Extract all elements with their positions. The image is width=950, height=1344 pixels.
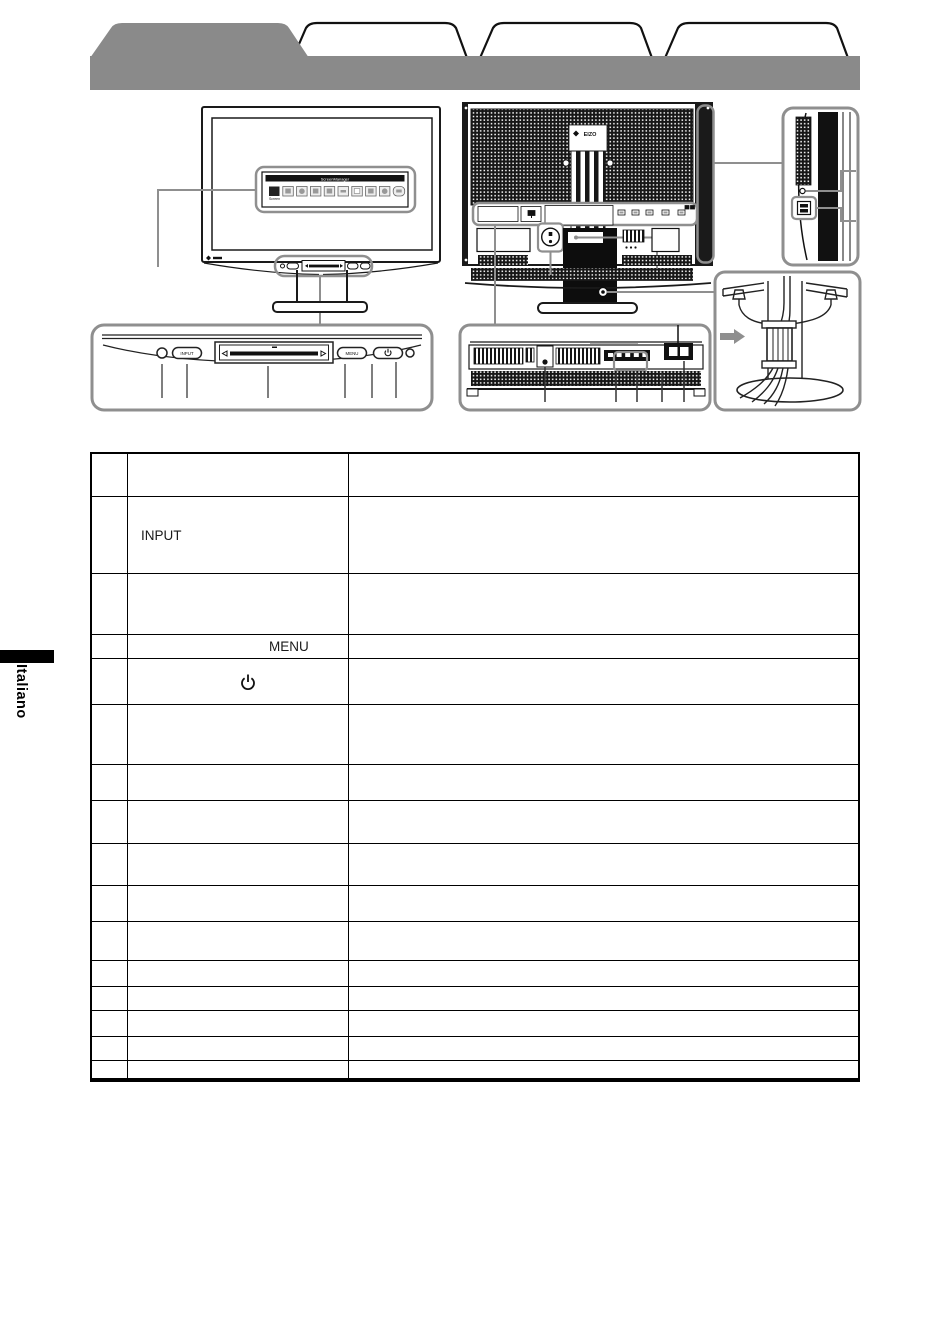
power-connector <box>538 224 563 252</box>
menu-row-label: MENU <box>128 635 349 658</box>
table-row: MENU <box>92 634 858 658</box>
language-tab-header <box>90 20 860 90</box>
bottom-connectors-closeup <box>460 325 710 410</box>
power-icon <box>240 673 256 691</box>
rating-label-plate <box>477 229 530 252</box>
slide-bar <box>215 342 333 363</box>
menu-button: MENU <box>338 348 367 359</box>
table-row <box>92 986 858 1010</box>
tab-active <box>90 23 309 58</box>
tab-2 <box>293 23 467 58</box>
cable-holder-closeup <box>715 272 860 410</box>
control-panel-closeup: INPUT MENU <box>92 325 432 410</box>
screw-icon <box>563 160 569 166</box>
table-row <box>92 1036 858 1060</box>
table-row <box>92 843 858 885</box>
table-row <box>92 921 858 960</box>
table-row <box>92 1060 858 1081</box>
manual-page: { "sidebar": { "language": "Italiano" },… <box>0 0 950 1344</box>
side-closeup <box>783 108 858 265</box>
screw-icon <box>607 160 613 166</box>
table-row <box>92 885 858 921</box>
power-button <box>374 348 403 359</box>
power-indicator-icon <box>406 349 414 357</box>
menu-selected-label: Screen <box>269 197 280 201</box>
table-row <box>92 764 858 800</box>
table-row: INPUT <box>92 496 858 573</box>
input-button: INPUT <box>173 348 202 359</box>
language-label: Italiano <box>13 664 29 719</box>
table-row <box>92 704 858 764</box>
input-row-label: INPUT <box>128 497 349 573</box>
table-row <box>92 800 858 843</box>
parts-function-table: INPUT MENU <box>90 452 860 1082</box>
table-row <box>92 573 858 634</box>
table-row <box>92 960 858 986</box>
table-row <box>92 454 858 496</box>
usb-port <box>792 197 816 219</box>
side-vent-mesh <box>796 117 811 185</box>
tab-3 <box>480 23 652 58</box>
input-button-label: INPUT <box>180 351 193 356</box>
language-edge-bar <box>0 650 54 663</box>
table-row <box>92 658 858 704</box>
screen-manager-menu: ScreenManager Screen <box>262 172 408 207</box>
menu-button-label: MENU <box>346 351 359 356</box>
monitor-diagrams: ScreenManager Screen <box>90 93 872 418</box>
screen-manager-title: ScreenManager <box>321 176 350 181</box>
svg-text:EIZO: EIZO <box>584 132 598 138</box>
table-row <box>92 1010 858 1036</box>
side-jack-icon <box>800 188 805 193</box>
eizo-logo-rear: EIZO <box>569 125 607 151</box>
tab-4 <box>665 23 848 58</box>
rear-stand-base <box>538 303 637 313</box>
sensor-icon <box>157 348 167 358</box>
header-band <box>90 56 860 90</box>
front-view: ScreenManager Screen <box>158 107 440 325</box>
